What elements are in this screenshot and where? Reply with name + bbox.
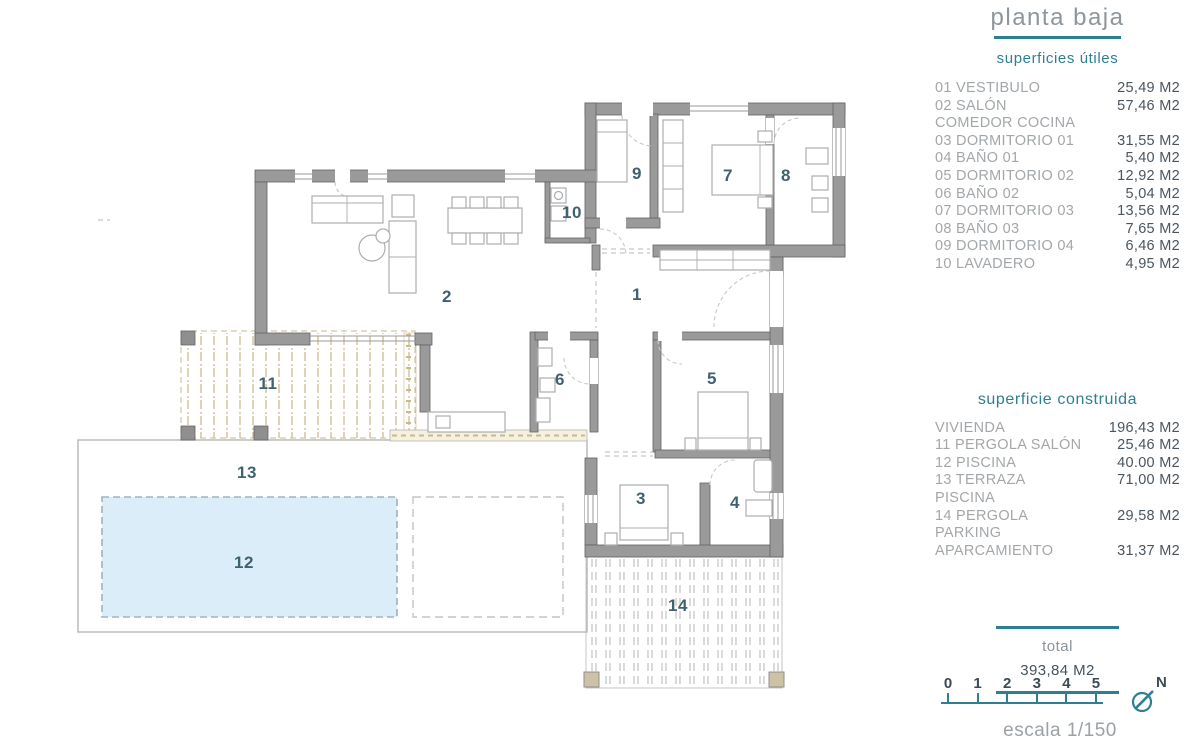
area-row: 11 PERGOLA SALÓN25,46 M2 (935, 437, 1180, 455)
area-label: 14 PERGOLA PARKING (935, 508, 1087, 543)
scale-ticks: 0 1 2 3 4 5 (941, 676, 1103, 702)
area-row: 01 VESTIBULO25,49 M2 (935, 80, 1180, 98)
area-label: VIVIENDA (935, 420, 1087, 438)
scale-label: escala 1/150 (985, 720, 1135, 742)
north-label: N (1156, 674, 1167, 691)
pergola-14 (584, 557, 784, 688)
area-row: 13 TERRAZA PISCINA71,00 M2 (935, 472, 1180, 507)
area-value: 12,92 M2 (1087, 168, 1180, 186)
area-row: APARCAMIENTO31,37 M2 (935, 543, 1180, 561)
area-value: 13,56 M2 (1087, 203, 1180, 221)
page-title: planta baja (935, 4, 1180, 32)
area-value: 7,65 M2 (1087, 221, 1180, 239)
area-label: 08 BAÑO 03 (935, 221, 1087, 239)
floor-plan-page: 1 2 3 4 5 6 7 8 9 10 11 12 13 14 planta … (0, 0, 1200, 751)
area-row: 03 DORMITORIO 0131,55 M2 (935, 133, 1180, 151)
built-areas-list: VIVIENDA196,43 M2 11 PERGOLA SALÓN25,46 … (935, 420, 1180, 561)
area-row: 04 BAÑO 015,40 M2 (935, 150, 1180, 168)
info-panel: planta baja superficies útiles 01 VESTIB… (935, 4, 1180, 694)
useful-areas-list: 01 VESTIBULO25,49 M2 02 SALÓN COMEDOR CO… (935, 80, 1180, 274)
area-label: 07 DORMITORIO 03 (935, 203, 1087, 221)
room-label-10: 10 (562, 203, 582, 223)
scale-tick: 3 (1030, 676, 1044, 702)
area-label: APARCAMIENTO (935, 543, 1087, 561)
area-label: 05 DORMITORIO 02 (935, 168, 1087, 186)
scale-tick: 1 (971, 676, 985, 702)
area-row: 14 PERGOLA PARKING29,58 M2 (935, 508, 1180, 543)
useful-areas-heading: superficies útiles (935, 50, 1180, 67)
area-label: 06 BAÑO 02 (935, 186, 1087, 204)
room-label-8: 8 (781, 166, 791, 186)
total-label: total (996, 638, 1119, 655)
area-label: 03 DORMITORIO 01 (935, 133, 1087, 151)
area-label: 11 PERGOLA SALÓN (935, 437, 1087, 455)
area-value: 6,46 M2 (1087, 238, 1180, 256)
area-value: 25,46 M2 (1087, 437, 1180, 455)
room-label-4: 4 (730, 493, 740, 513)
room-label-13: 13 (237, 463, 257, 483)
room-label-1: 1 (632, 285, 642, 305)
room-label-3: 3 (636, 489, 646, 509)
area-label: 02 SALÓN COMEDOR COCINA (935, 98, 1087, 133)
area-row: 09 DORMITORIO 046,46 M2 (935, 238, 1180, 256)
area-row: 10 LAVADERO4,95 M2 (935, 256, 1180, 274)
room-label-9: 9 (632, 164, 642, 184)
area-label: 10 LAVADERO (935, 256, 1087, 274)
scale-tick: 0 (941, 676, 955, 702)
area-value: 4,95 M2 (1087, 256, 1180, 274)
area-row: 08 BAÑO 037,65 M2 (935, 221, 1180, 239)
area-value: 25,49 M2 (1087, 80, 1180, 98)
scale-tick: 4 (1059, 676, 1073, 702)
area-label: 09 DORMITORIO 04 (935, 238, 1087, 256)
area-value: 29,58 M2 (1087, 508, 1180, 526)
area-value: 40.00 M2 (1087, 455, 1180, 473)
scale-tick: 2 (1000, 676, 1014, 702)
room-label-14: 14 (668, 596, 688, 616)
room-label-11: 11 (259, 374, 278, 394)
area-label: 13 TERRAZA PISCINA (935, 472, 1087, 507)
area-row: 06 BAÑO 025,04 M2 (935, 186, 1180, 204)
area-value: 5,04 M2 (1087, 186, 1180, 204)
area-label: 01 VESTIBULO (935, 80, 1087, 98)
room-label-12: 12 (234, 553, 254, 573)
title-underline (994, 36, 1121, 39)
area-value: 31,37 M2 (1087, 543, 1180, 561)
area-label: 12 PISCINA (935, 455, 1087, 473)
room-label-2: 2 (442, 287, 452, 307)
area-value: 5,40 M2 (1087, 150, 1180, 168)
area-row: 02 SALÓN COMEDOR COCINA57,46 M2 (935, 98, 1180, 133)
area-row: 07 DORMITORIO 0313,56 M2 (935, 203, 1180, 221)
area-label: 04 BAÑO 01 (935, 150, 1087, 168)
area-value: 71,00 M2 (1087, 472, 1180, 490)
area-row: VIVIENDA196,43 M2 (935, 420, 1180, 438)
area-value: 57,46 M2 (1087, 98, 1180, 116)
room-label-7: 7 (723, 166, 733, 186)
area-value: 31,55 M2 (1087, 133, 1180, 151)
area-row: 12 PISCINA40.00 M2 (935, 455, 1180, 473)
pergola-11 (181, 331, 416, 440)
scale-tick: 5 (1089, 676, 1103, 702)
room-label-5: 5 (707, 369, 717, 389)
area-value: 196,43 M2 (1087, 420, 1180, 438)
room-label-6: 6 (555, 370, 565, 390)
built-areas-heading: superficie construida (935, 391, 1180, 409)
dashed-area (413, 497, 563, 617)
area-row: 05 DORMITORIO 0212,92 M2 (935, 168, 1180, 186)
scale-bar: 0 1 2 3 4 5 (941, 676, 1103, 704)
